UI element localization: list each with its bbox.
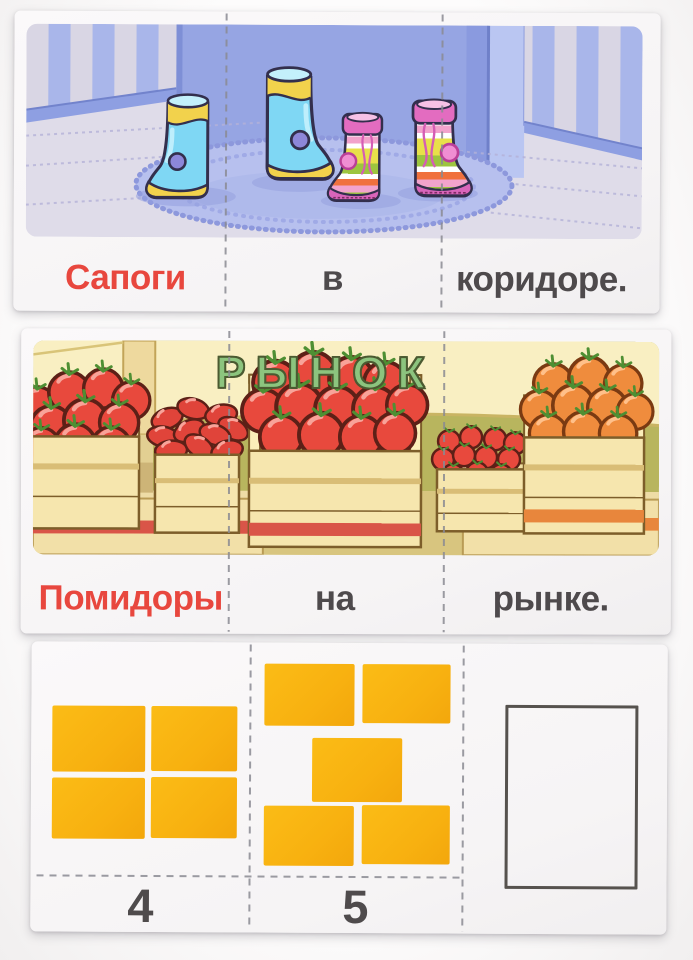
word-object: коридоре. <box>456 260 627 301</box>
flashcards-photo: Сапоги в коридоре. <box>0 0 693 960</box>
boots-scene-svg <box>26 24 643 240</box>
card-boots-sentence: Сапоги в коридоре. <box>13 11 660 314</box>
word-object: рынке. <box>493 579 609 619</box>
empty-answer-frame <box>504 705 638 890</box>
word-subject: Сапоги <box>65 258 186 299</box>
counting-tile <box>312 738 402 802</box>
boots-hallway-illustration <box>26 24 643 240</box>
market-sign: РЫНОК <box>216 347 435 399</box>
count-label-four: 4 <box>127 878 153 933</box>
word-preposition: в <box>322 259 343 299</box>
counting-tile <box>264 664 354 726</box>
market-illustration: РЫНОК <box>33 340 659 555</box>
word-subject: Помидоры <box>39 578 223 618</box>
counting-tile <box>362 664 450 723</box>
count-label-five: 5 <box>342 879 368 934</box>
tomato-crate-5 <box>520 349 653 534</box>
cut-line-vertical <box>228 331 231 632</box>
cut-line-vertical <box>443 331 446 632</box>
card-counting-tiles: 4 5 <box>30 641 668 934</box>
tomato-crate-4 <box>432 424 526 531</box>
word-preposition: на <box>315 579 355 619</box>
tomato-crate-1 <box>33 361 150 529</box>
card-market-sentence: РЫНОК Помидоры на рынке. <box>21 328 672 634</box>
tomato-crate-2 <box>145 395 252 533</box>
counting-tile <box>264 806 354 866</box>
counting-tile <box>362 805 450 864</box>
